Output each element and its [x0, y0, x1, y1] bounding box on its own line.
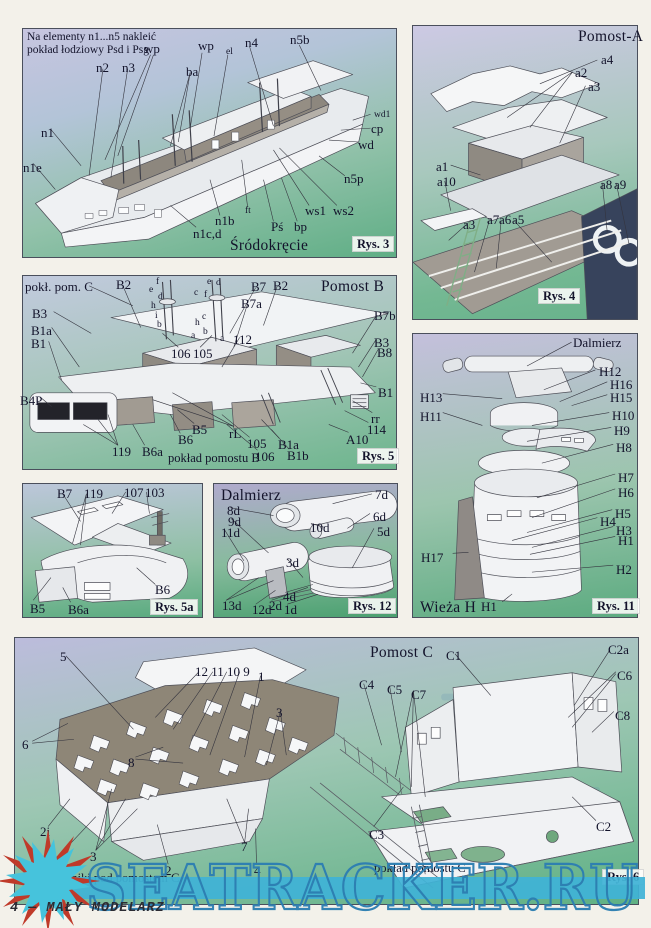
rys11-panel-wieza-h: [412, 333, 638, 618]
rangefinder-shapes: [227, 489, 397, 602]
rys5-drawing: [23, 276, 396, 469]
rys3-panel-srodokrecie: [22, 28, 397, 258]
rys12-drawing: [214, 484, 397, 617]
superstructure-shapes: [369, 673, 634, 888]
hull-shapes: [36, 61, 369, 247]
rys6-panel-pomost-c: [14, 637, 639, 905]
rys5a-drawing: [23, 484, 202, 617]
deck-shapes: [31, 496, 187, 602]
rys11-drawing: [413, 334, 637, 617]
rys4-panel-pomost-a: [412, 25, 638, 320]
tower-shapes: [442, 356, 615, 601]
rys12-panel-dalmierz: [213, 483, 398, 618]
rys5-panel-pomost-b: [22, 275, 397, 470]
rys6-drawing: [15, 638, 638, 904]
rys4-drawing: [413, 26, 637, 319]
page-footer: 4 — MAŁY MODELARZ: [10, 901, 165, 916]
support-deck-shapes: [56, 648, 339, 860]
rys5a-panel: [22, 483, 203, 618]
rys3-hull-drawing: [23, 29, 396, 257]
magazine-page: Na elementy n1...n5 nakleić pokład łodzi…: [0, 0, 651, 928]
bridge-shapes: [30, 292, 388, 433]
